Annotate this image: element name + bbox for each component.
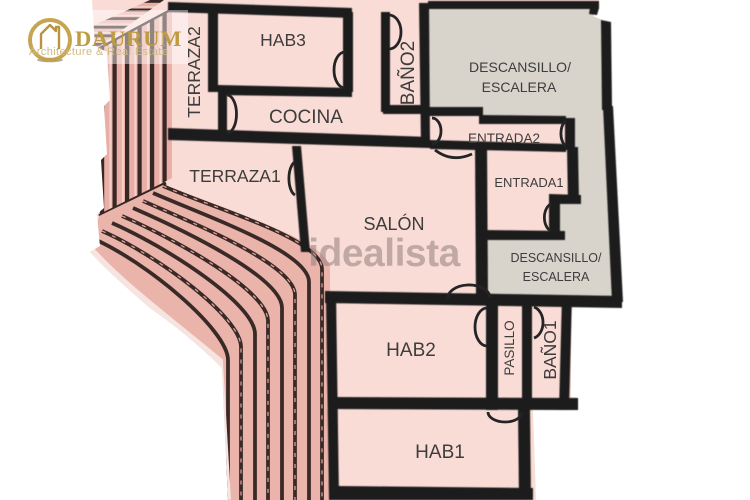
svg-text:ENTRADA1: ENTRADA1 bbox=[494, 175, 563, 190]
svg-text:BAÑO1: BAÑO1 bbox=[539, 320, 560, 379]
svg-text:idealista: idealista bbox=[308, 232, 460, 275]
svg-text:BAÑO2: BAÑO2 bbox=[397, 41, 419, 105]
svg-text:COCINA: COCINA bbox=[269, 107, 343, 128]
svg-text:PASILLO: PASILLO bbox=[502, 320, 517, 375]
svg-text:DESCANSILLO/: DESCANSILLO/ bbox=[510, 251, 602, 265]
svg-text:HAB1: HAB1 bbox=[415, 442, 465, 463]
svg-text:SALÓN: SALÓN bbox=[363, 213, 424, 234]
svg-text:HAB3: HAB3 bbox=[260, 30, 306, 50]
svg-text:ESCALERA: ESCALERA bbox=[523, 270, 590, 284]
svg-text:ESCALERA: ESCALERA bbox=[482, 79, 557, 95]
svg-text:TERRAZA1: TERRAZA1 bbox=[189, 166, 280, 186]
svg-text:ENTRADA2: ENTRADA2 bbox=[468, 131, 540, 146]
svg-text:HAB2: HAB2 bbox=[386, 340, 436, 361]
svg-text:DESCANSILLO/: DESCANSILLO/ bbox=[469, 59, 571, 75]
svg-text:Architecture & Real Estate: Architecture & Real Estate bbox=[29, 46, 168, 58]
